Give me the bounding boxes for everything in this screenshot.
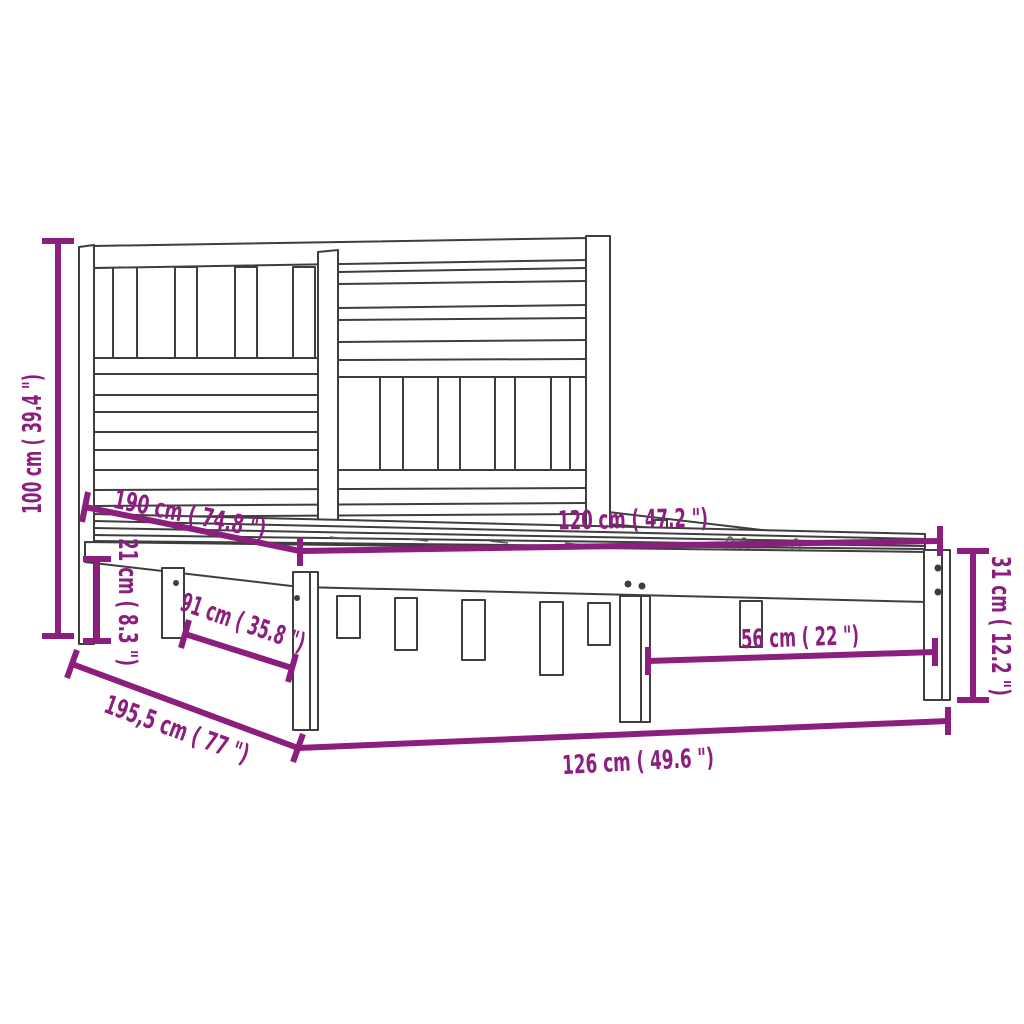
dim-label-frame-width: 126 cm ( 49.6 ") bbox=[561, 743, 714, 781]
dim-label-foot-frame-height: 31 cm ( 12.2 ") bbox=[985, 556, 1015, 696]
far-support-legs bbox=[337, 596, 762, 675]
dim-label-foot-leg-spacing: 56 cm ( 22 ") bbox=[741, 621, 860, 655]
dimension-annotations: 100 cm ( 39.4 ") 21 cm ( 8.3 ") 190 cm (… bbox=[18, 241, 1015, 781]
dimension-foot-frame-height: 31 cm ( 12.2 ") bbox=[957, 551, 1015, 700]
headboard-left-post bbox=[79, 245, 94, 644]
dimension-frame-length: 195,5 cm ( 77 ") bbox=[67, 650, 303, 770]
front-right-leg bbox=[924, 550, 950, 700]
dim-label-mattress-width: 120 cm ( 47.2 ") bbox=[558, 504, 709, 537]
diagram-canvas: 100 cm ( 39.4 ") 21 cm ( 8.3 ") 190 cm (… bbox=[0, 0, 1024, 1024]
dimension-side-leg-spacing: 91 cm ( 35.8 ") bbox=[176, 588, 309, 682]
headboard-middle-post bbox=[318, 250, 338, 542]
dim-label-side-leg-spacing: 91 cm ( 35.8 ") bbox=[176, 588, 309, 659]
headboard-left-panel bbox=[94, 262, 318, 450]
dim-label-head-leg-height: 21 cm ( 8.3 ") bbox=[112, 538, 142, 666]
dim-label-headboard-height: 100 cm ( 39.4 ") bbox=[18, 374, 48, 514]
dimension-headboard-height: 100 cm ( 39.4 ") bbox=[18, 241, 74, 636]
headboard-top-rail bbox=[93, 238, 587, 268]
front-rail bbox=[85, 542, 928, 602]
headboard-right-panel bbox=[338, 268, 586, 470]
dimension-foot-leg-spacing: 56 cm ( 22 ") bbox=[648, 621, 935, 675]
